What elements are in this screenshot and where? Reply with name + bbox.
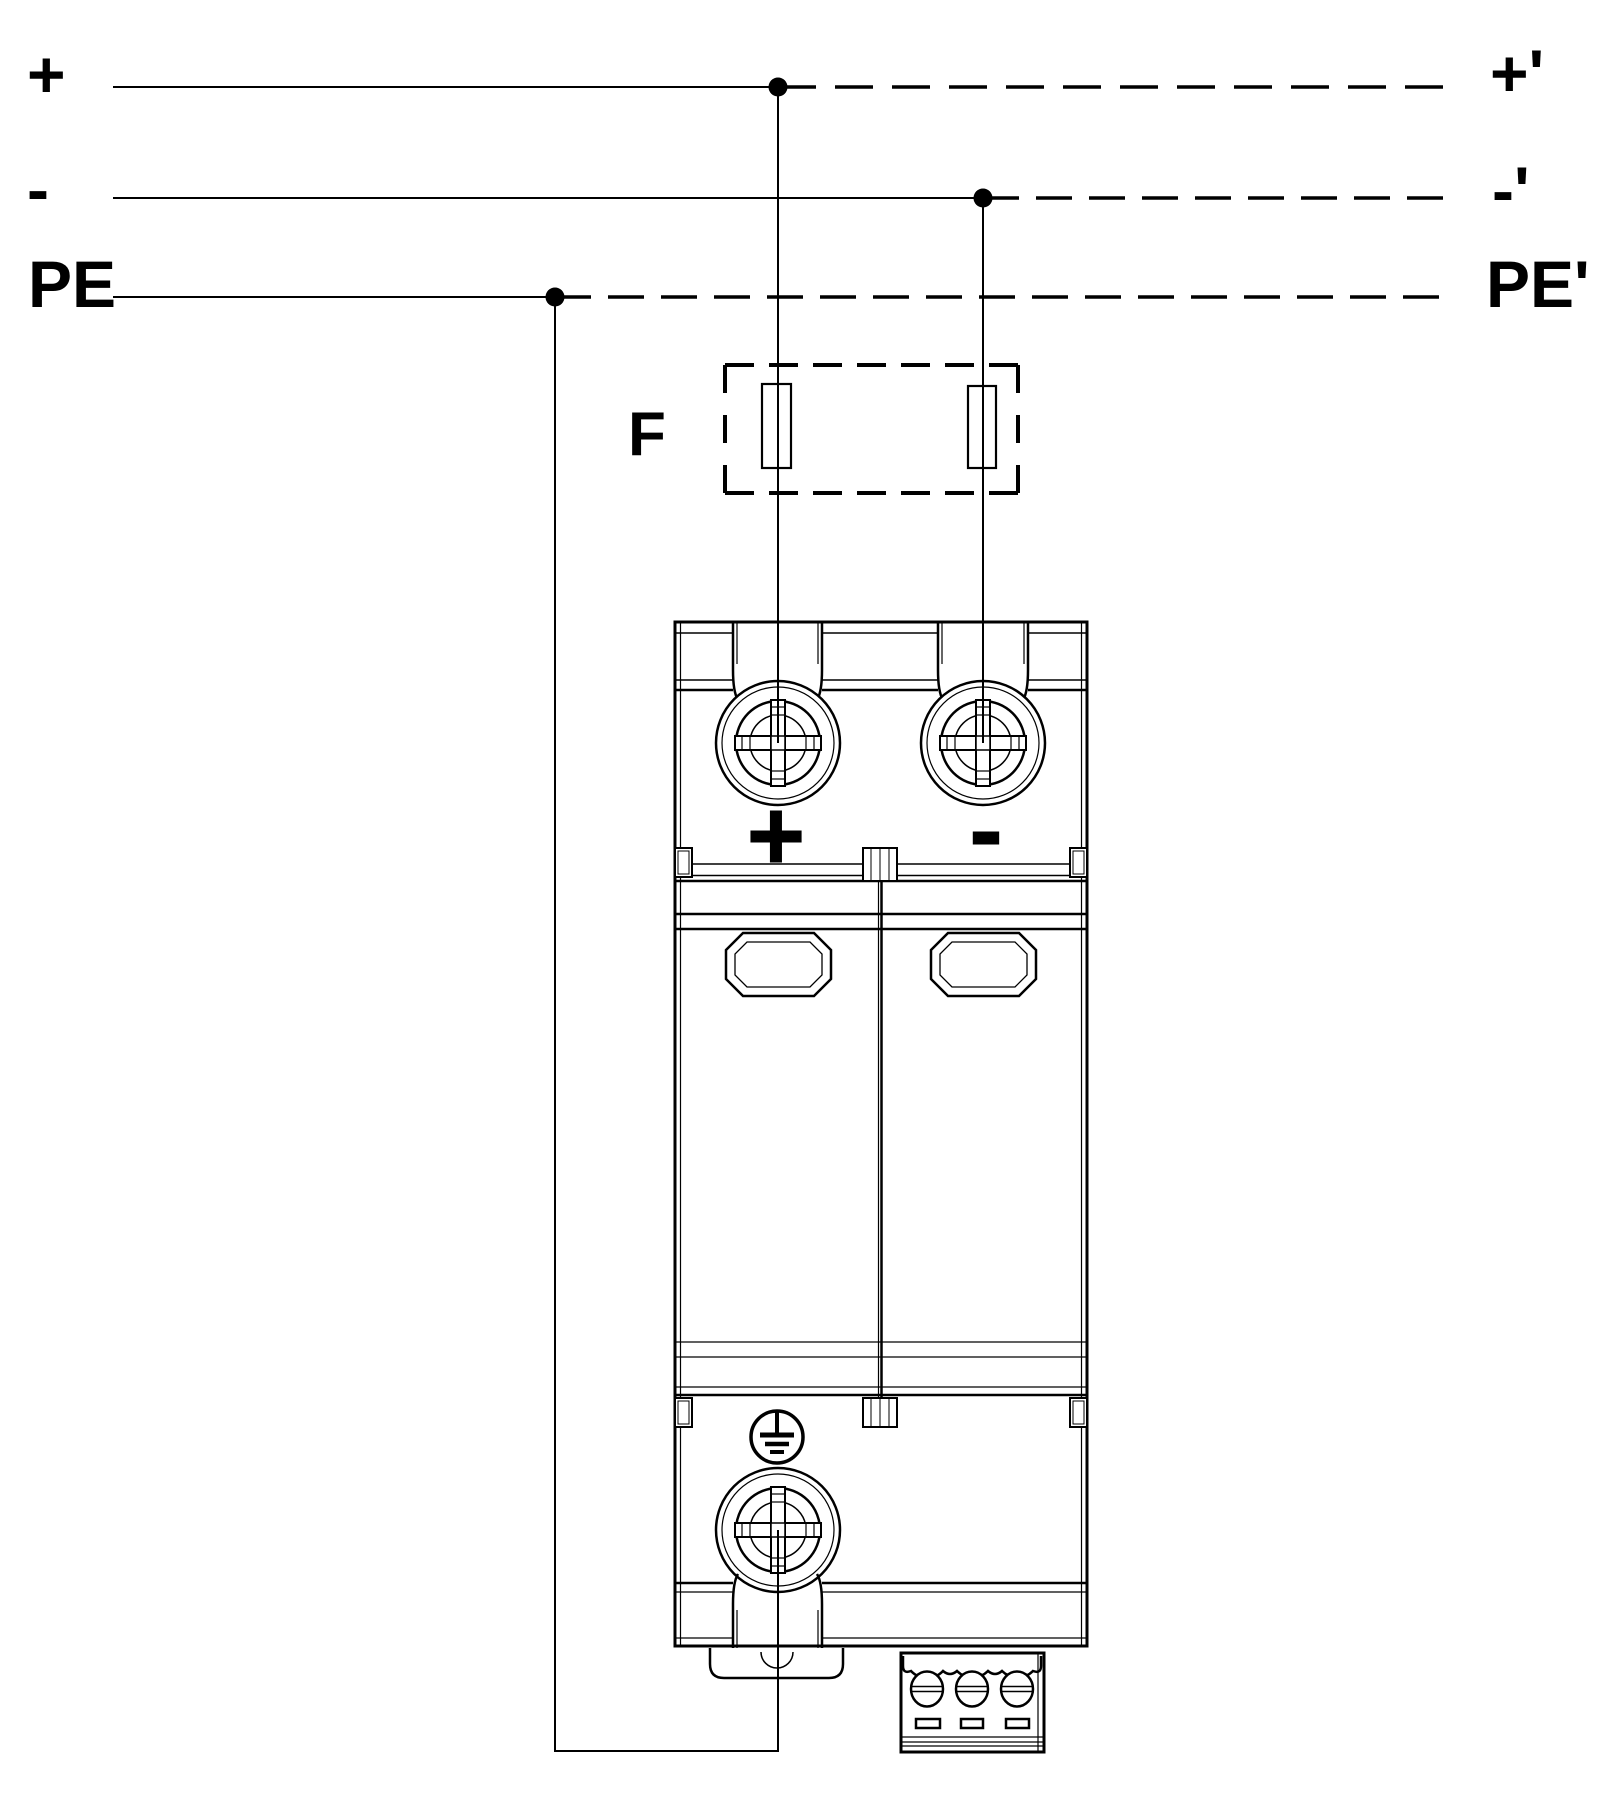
- wiring-diagram: + -: [0, 0, 1600, 1800]
- junction-dots: [546, 78, 993, 307]
- label-output-minus: -': [1492, 153, 1530, 227]
- junction-minus: [974, 189, 993, 208]
- signal-terminal-block: [901, 1653, 1044, 1752]
- device-minus-marking: -: [969, 774, 1002, 886]
- signal-screw: [911, 1672, 1033, 1707]
- label-output-pe: PE': [1486, 247, 1590, 321]
- wiring-diagram-canvas: + -: [0, 0, 1600, 1800]
- label-input-pe: PE: [28, 247, 116, 321]
- din-foot: [710, 1648, 843, 1678]
- fuse-element-plus: [762, 384, 791, 468]
- label-fuse: F: [628, 400, 666, 469]
- spd-device: + -: [675, 622, 1087, 1752]
- label-input-minus: -: [27, 152, 49, 226]
- label-input-plus: +: [27, 37, 66, 111]
- fuse-box: [725, 365, 1018, 493]
- wire-entry: [916, 1719, 1029, 1728]
- label-output-plus: +': [1490, 36, 1544, 110]
- junction-pe: [546, 288, 565, 307]
- junction-plus: [769, 78, 788, 97]
